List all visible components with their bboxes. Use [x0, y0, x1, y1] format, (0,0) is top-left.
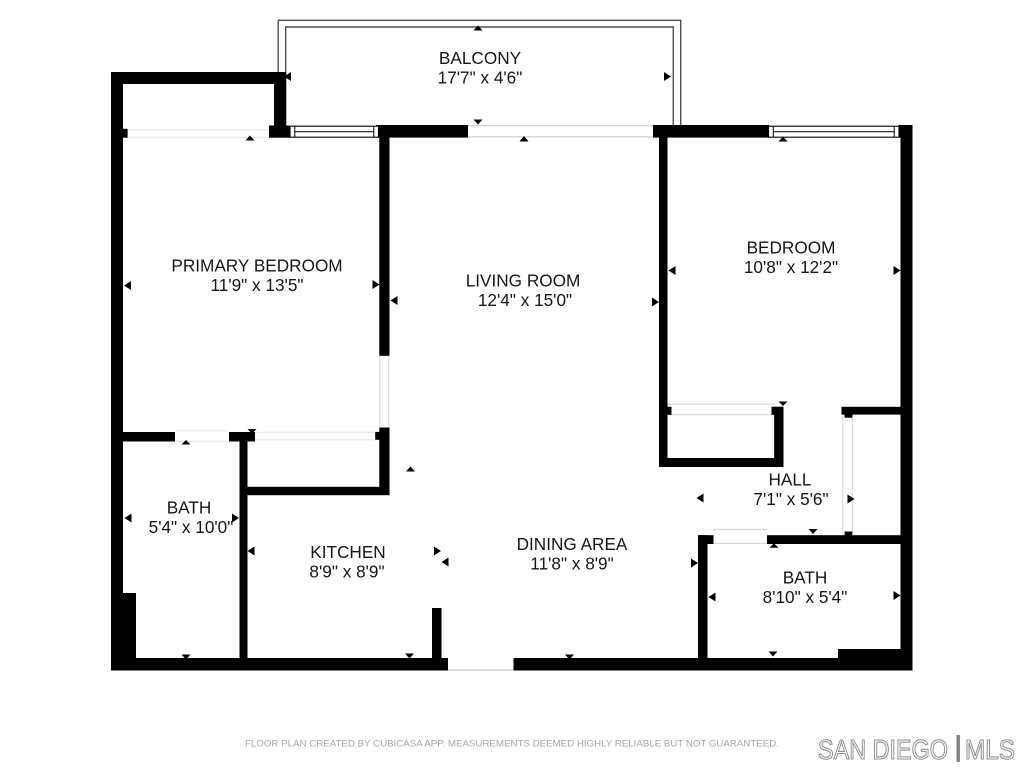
svg-text:DINING AREA: DINING AREA [517, 534, 628, 554]
svg-text:BATH: BATH [783, 568, 828, 588]
svg-text:5'4" x 10'0": 5'4" x 10'0" [149, 517, 234, 537]
svg-text:BEDROOM: BEDROOM [747, 238, 836, 258]
svg-text:11'9" x 13'5": 11'9" x 13'5" [211, 275, 304, 295]
svg-text:SAN DIEGO: SAN DIEGO [818, 734, 948, 765]
svg-text:KITCHEN: KITCHEN [310, 542, 385, 562]
svg-text:LIVING ROOM: LIVING ROOM [466, 271, 581, 291]
svg-text:FLOOR PLAN CREATED BY CUBICASA: FLOOR PLAN CREATED BY CUBICASA APP. MEAS… [245, 739, 779, 750]
svg-text:17'7" x 4'6": 17'7" x 4'6" [438, 68, 523, 88]
svg-text:PRIMARY BEDROOM: PRIMARY BEDROOM [171, 256, 342, 276]
svg-text:MLS: MLS [965, 734, 1015, 765]
svg-text:BATH: BATH [167, 498, 212, 518]
svg-text:BALCONY: BALCONY [439, 48, 522, 68]
svg-text:HALL: HALL [769, 470, 812, 490]
svg-text:8'9" x 8'9": 8'9" x 8'9" [309, 562, 384, 582]
svg-text:10'8" x 12'2": 10'8" x 12'2" [744, 257, 838, 277]
svg-text:11'8" x 8'9": 11'8" x 8'9" [530, 554, 613, 574]
svg-text:12'4" x 15'0": 12'4" x 15'0" [478, 290, 572, 310]
svg-text:8'10" x 5'4": 8'10" x 5'4" [763, 587, 848, 607]
svg-text:7'1" x 5'6": 7'1" x 5'6" [753, 489, 828, 509]
